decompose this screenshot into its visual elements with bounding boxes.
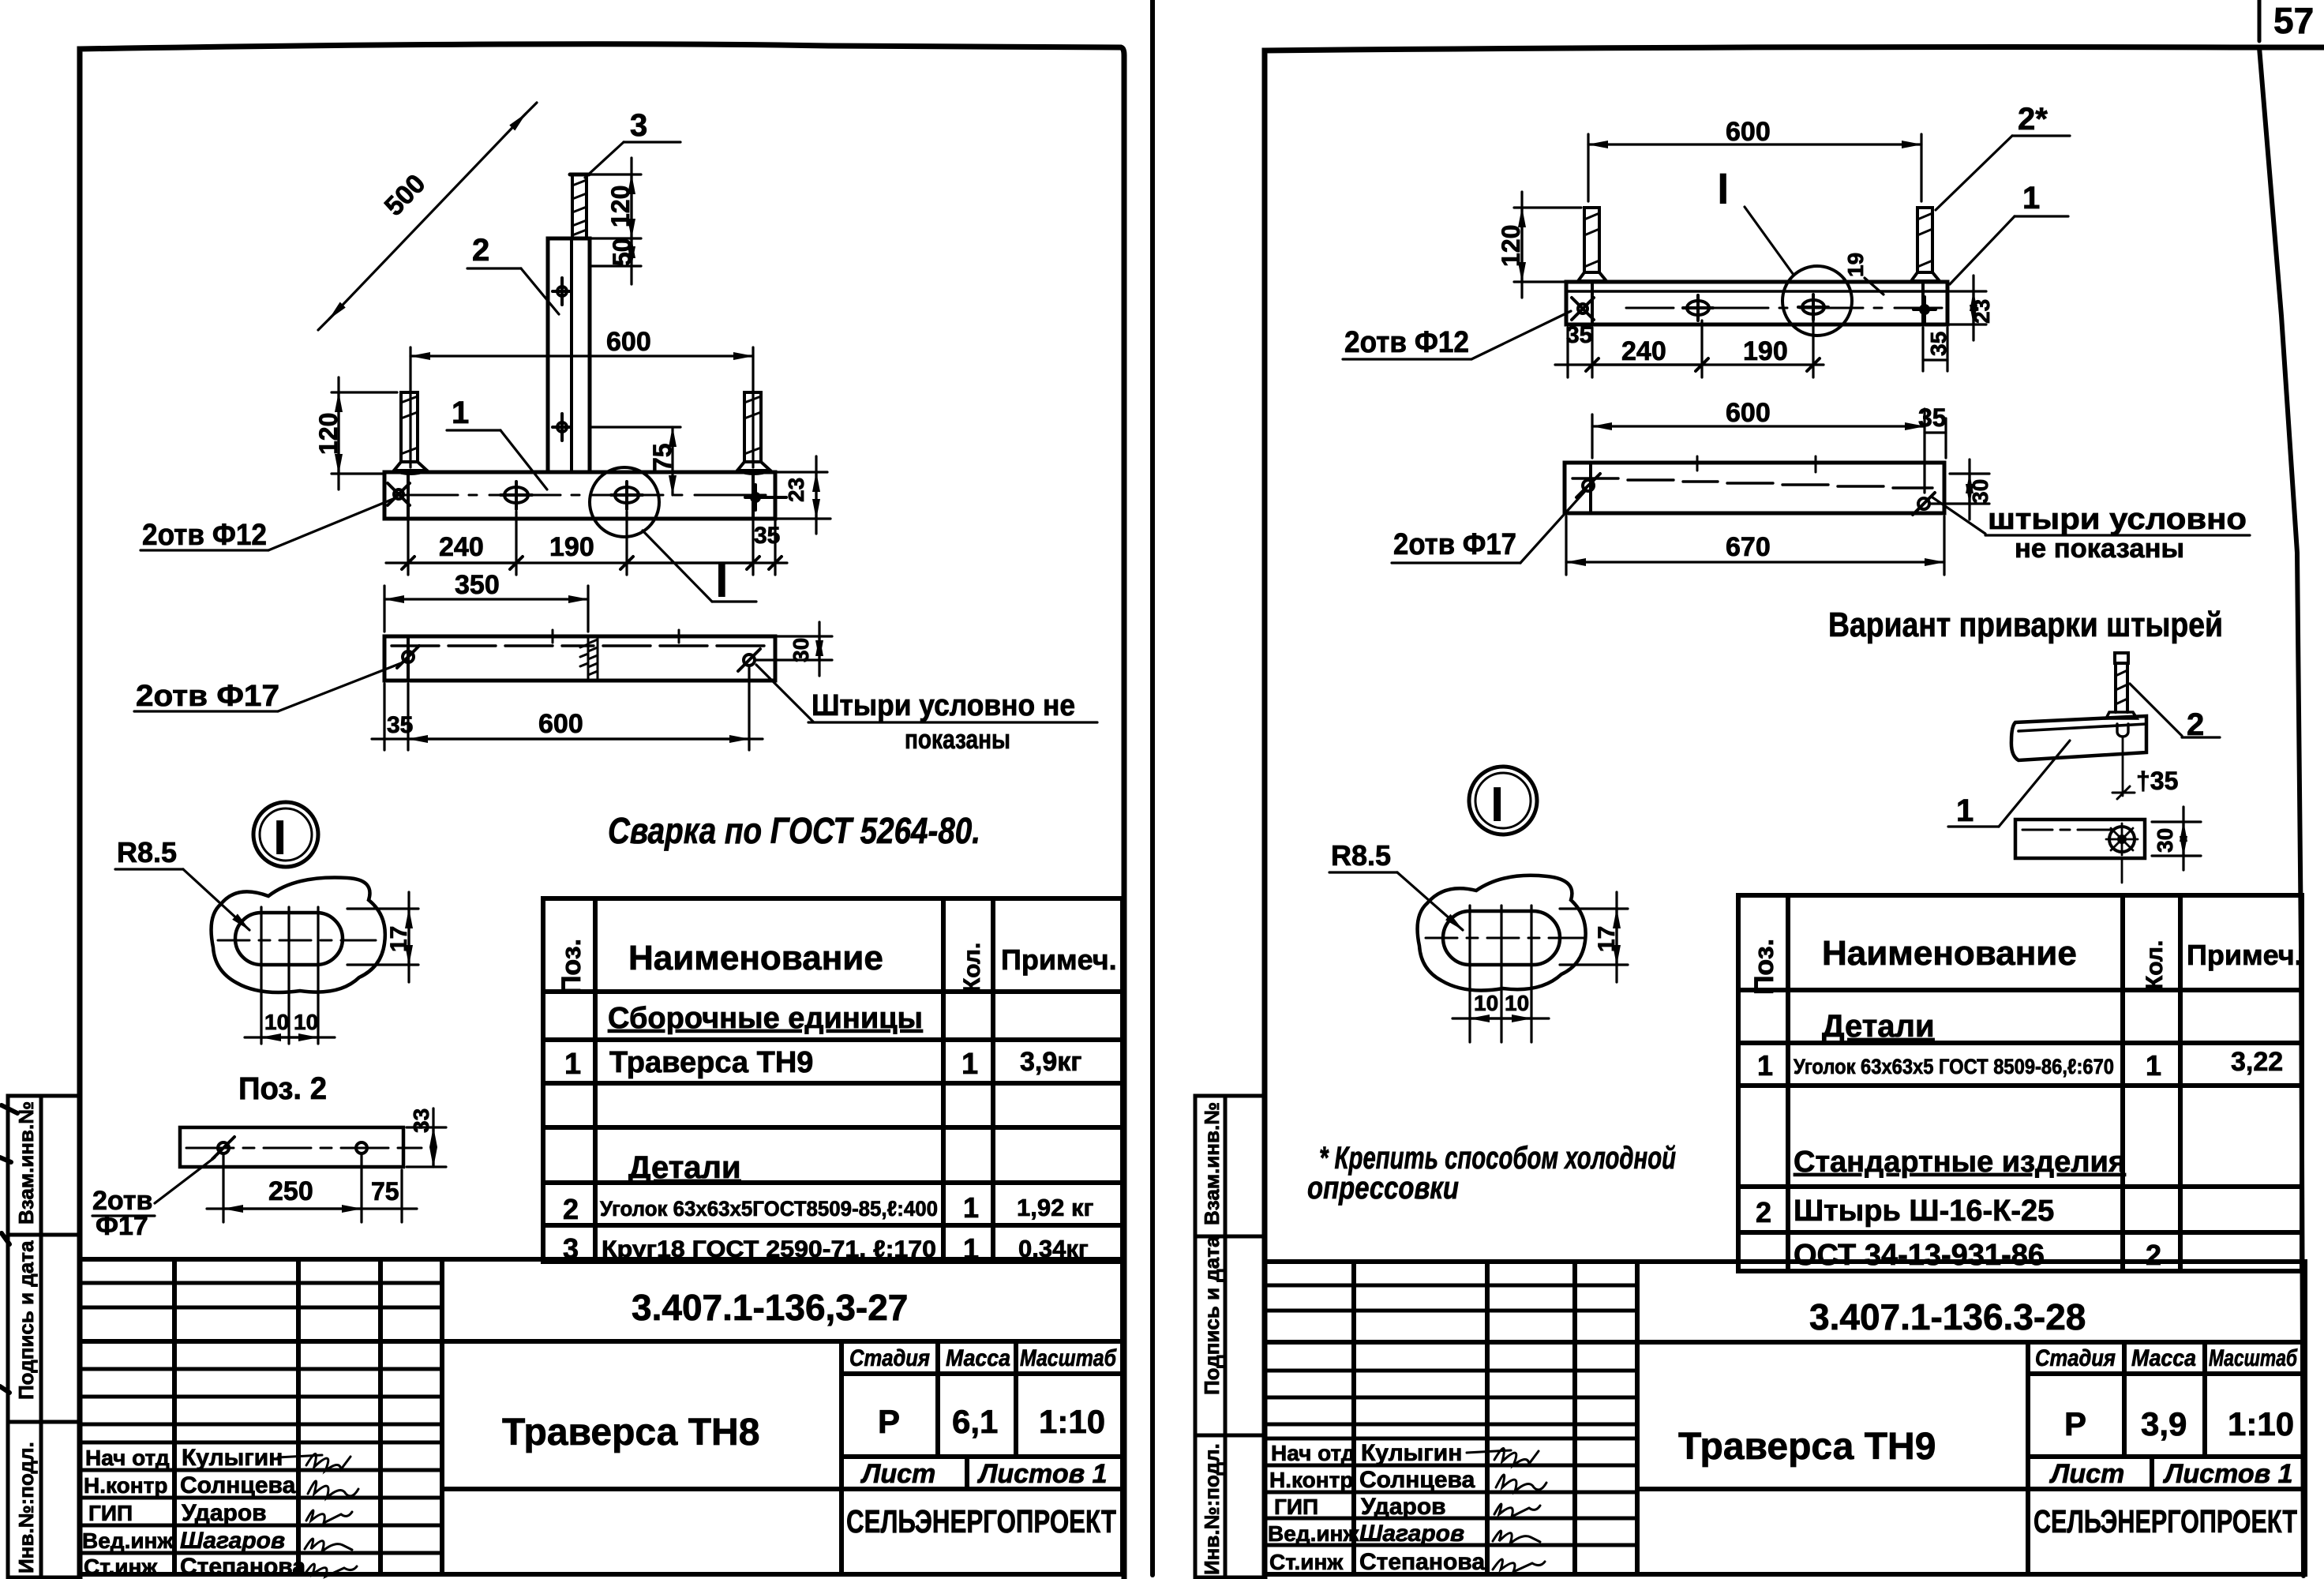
svg-text:3,9: 3,9 [2141,1405,2187,1442]
svg-text:23: 23 [784,478,808,502]
svg-text:600: 600 [538,709,583,739]
svg-text:Масса: Масса [946,1345,1010,1371]
svg-text:Ударов: Ударов [182,1500,267,1526]
svg-text:75: 75 [371,1177,399,1206]
svg-text:Ударов: Ударов [1361,1494,1446,1520]
svg-text:2: 2 [472,233,489,268]
svg-text:Сборочные единицы: Сборочные единицы [608,1002,923,1035]
svg-text:I: I [1717,163,1730,213]
svg-text:R8.5: R8.5 [117,836,177,868]
svg-text:Масштаб: Масштаб [2209,1345,2298,1371]
svg-text:30: 30 [1968,479,1992,504]
svg-text:17: 17 [386,926,412,952]
svg-text:30: 30 [789,638,813,662]
svg-text:Подпись и дата: Подпись и дата [1200,1236,1224,1395]
svg-text:35: 35 [387,712,413,738]
svg-text:СЕЛЬЭНЕРГОПРОЕКТ: СЕЛЬЭНЕРГОПРОЕКТ [2033,1503,2297,1540]
svg-text:3: 3 [630,108,647,143]
svg-text:штыри условно: штыри условно [1988,503,2247,536]
svg-text:Поз.: Поз. [557,939,587,995]
svg-text:Инв.№:подл.: Инв.№:подл. [1200,1443,1224,1575]
svg-text:2: 2 [2187,707,2204,742]
svg-text:50: 50 [608,238,636,266]
svg-text:1:10: 1:10 [1039,1403,1105,1440]
svg-text:2: 2 [563,1193,579,1225]
svg-text:Р: Р [878,1403,900,1440]
svg-text:I: I [273,811,287,865]
svg-text:10: 10 [264,1010,289,1034]
svg-text:2: 2 [2146,1239,2161,1271]
svg-text:1: 1 [2146,1049,2161,1082]
svg-text:75: 75 [648,443,677,471]
svg-text:10: 10 [1474,991,1498,1015]
svg-text:1: 1 [2022,181,2040,216]
svg-text:Кулыгин: Кулыгин [182,1445,283,1471]
svg-text:R8.5: R8.5 [1331,839,1391,872]
svg-text:Н.контр: Н.контр [1269,1468,1353,1492]
svg-text:Штырь Ш-16-К-25: Штырь Ш-16-К-25 [1794,1195,2054,1228]
svg-text:Сварка по ГОСТ 5264-80.: Сварка по ГОСТ 5264-80. [608,810,980,851]
svg-text:ОСТ 34-13-931-86: ОСТ 34-13-931-86 [1794,1239,2045,1272]
svg-text:Взам.инв.№: Взам.инв.№ [1200,1102,1224,1225]
svg-text:35: 35 [1566,322,1592,348]
svg-text:Нач отд: Нач отд [1271,1441,1355,1465]
svg-text:3.407.1-136,3-27: 3.407.1-136,3-27 [632,1287,908,1328]
svg-text:2*: 2* [2018,102,2048,137]
svg-text:Лист: Лист [2048,1459,2124,1489]
svg-text:ГИП: ГИП [1274,1495,1318,1519]
svg-text:670: 670 [1726,532,1771,562]
svg-text:Шагаров: Шагаров [180,1528,285,1554]
svg-text:Траверса ТН8: Траверса ТН8 [502,1412,759,1453]
svg-text:2отв Ф17: 2отв Ф17 [1393,528,1516,561]
svg-text:120: 120 [1497,225,1525,267]
svg-text:Уголок 63х63х5 ГОСТ 8509-86,ℓ:: Уголок 63х63х5 ГОСТ 8509-86,ℓ:670 [1794,1055,2114,1078]
svg-text:Вед.инж: Вед.инж [82,1528,174,1553]
svg-text:240: 240 [439,532,484,562]
svg-text:Кол.: Кол. [2142,940,2168,990]
svg-text:1: 1 [963,1191,979,1224]
svg-text:Стадия: Стадия [2035,1345,2116,1371]
svg-text:Ст.инж: Ст.инж [84,1555,158,1579]
svg-text:показаны: показаны [905,725,1010,755]
svg-text:Р: Р [2064,1405,2086,1442]
svg-text:120: 120 [314,413,343,455]
svg-text:19: 19 [1843,253,1868,277]
svg-text:Примеч.: Примеч. [1001,943,1117,976]
svg-text:Траверса ТН9: Траверса ТН9 [1678,1426,1936,1468]
svg-text:Шагаров: Шагаров [1359,1521,1464,1547]
svg-text:250: 250 [268,1176,313,1206]
svg-text:Взам.инв.№: Взам.инв.№ [14,1101,38,1225]
svg-text:Траверса ТН9: Траверса ТН9 [609,1046,813,1079]
svg-text:3,22: 3,22 [2231,1047,2283,1077]
svg-text:1: 1 [1956,793,1974,828]
svg-text:Степанова: Степанова [180,1554,305,1579]
svg-text:Поз. 2: Поз. 2 [238,1071,327,1106]
svg-text:Солнцева: Солнцева [180,1472,296,1498]
svg-text:1,92 кг: 1,92 кг [1017,1194,1093,1221]
svg-text:57: 57 [2273,0,2314,41]
svg-text:Штыри условно не: Штыри условно не [812,689,1075,722]
svg-text:1: 1 [961,1048,978,1081]
svg-text:35: 35 [754,523,780,549]
svg-text:Вед.инж: Вед.инж [1268,1521,1359,1546]
svg-text:Уголок 63х63х5ГОСТ8509-85,ℓ:40: Уголок 63х63х5ГОСТ8509-85,ℓ:400 [600,1197,938,1221]
svg-text:600: 600 [1726,117,1771,147]
svg-text:190: 190 [549,532,594,562]
svg-text:Стадия: Стадия [849,1345,930,1371]
svg-text:1: 1 [564,1048,581,1081]
svg-text:33: 33 [409,1108,433,1133]
svg-text:Н.контр: Н.контр [84,1473,167,1498]
svg-text:Масса: Масса [2131,1345,2196,1371]
svg-text:†35: †35 [2136,767,2178,795]
svg-text:600: 600 [1726,398,1771,428]
svg-text:Подпись и дата: Подпись и дата [14,1240,38,1400]
svg-text:Инв.№:подл.: Инв.№:подл. [14,1442,38,1573]
svg-text:Наименование: Наименование [1822,934,2077,973]
svg-text:СЕЛЬЭНЕРГОПРОЕКТ: СЕЛЬЭНЕРГОПРОЕКТ [846,1503,1116,1540]
svg-text:1:10: 1:10 [2228,1405,2294,1442]
svg-text:Ст.инж: Ст.инж [1269,1550,1344,1574]
svg-text:Кол.: Кол. [959,943,985,992]
svg-text:2отв Ф12: 2отв Ф12 [1344,326,1469,359]
svg-text:10: 10 [294,1010,318,1034]
svg-text:ГИП: ГИП [88,1501,133,1525]
svg-text:3,9кг: 3,9кг [1020,1047,1081,1077]
svg-text:Кулыгин: Кулыгин [1361,1440,1462,1466]
svg-text:не показаны: не показаны [2015,534,2184,564]
svg-text:Листов 1: Листов 1 [2162,1459,2292,1489]
svg-text:I: I [715,554,729,607]
svg-text:17: 17 [1594,926,1620,952]
svg-text:6,1: 6,1 [952,1403,998,1440]
svg-text:10: 10 [1505,991,1529,1015]
svg-text:35: 35 [1918,403,1947,432]
svg-text:Наименование: Наименование [628,939,883,977]
svg-text:240: 240 [1621,336,1666,366]
svg-text:30: 30 [2153,828,2177,853]
svg-text:Солнцева: Солнцева [1359,1467,1475,1493]
svg-text:Поз.: Поз. [1749,939,1779,995]
svg-text:2отв Ф12: 2отв Ф12 [142,519,267,552]
svg-text:2отв Ф17: 2отв Ф17 [136,680,279,713]
svg-text:1: 1 [452,396,469,430]
svg-text:500: 500 [379,169,432,222]
svg-text:Нач отд: Нач отд [85,1446,170,1470]
svg-text:Вариант приварки штырей: Вариант приварки штырей [1828,606,2223,644]
svg-text:Степанова: Степанова [1359,1549,1485,1575]
svg-text:Масштаб: Масштаб [1020,1345,1117,1371]
svg-text:Лист: Лист [860,1459,935,1489]
svg-text:2: 2 [1756,1196,1771,1228]
svg-text:опрессовки: опрессовки [1307,1171,1459,1206]
svg-text:600: 600 [606,327,651,357]
svg-text:3.407.1-136.3-28: 3.407.1-136.3-28 [1809,1296,2086,1337]
svg-text:Детали: Детали [628,1150,741,1185]
svg-text:Листов 1: Листов 1 [976,1459,1107,1489]
svg-text:Детали: Детали [1822,1009,1935,1044]
svg-text:1: 1 [1757,1049,1773,1082]
svg-text:I: I [1490,778,1504,832]
svg-text:23: 23 [1970,299,1994,324]
svg-text:190: 190 [1743,336,1788,366]
svg-text:Примеч.: Примеч. [2187,939,2303,971]
svg-text:Стандартные изделия: Стандартные изделия [1794,1146,2126,1179]
svg-text:350: 350 [455,570,500,600]
svg-text:35: 35 [1926,332,1951,356]
svg-text:120: 120 [606,186,635,227]
